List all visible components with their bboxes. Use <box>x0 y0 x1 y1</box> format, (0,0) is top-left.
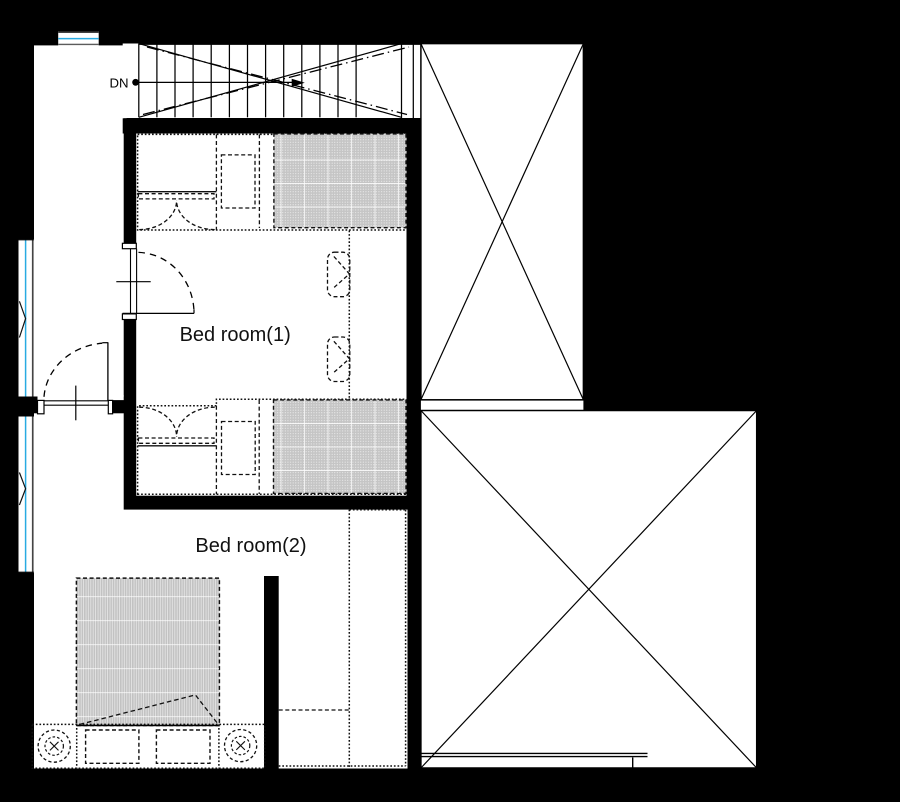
svg-text:Bed room(2): Bed room(2) <box>195 535 306 557</box>
svg-text:DN: DN <box>110 75 129 90</box>
svg-text:Bed room(1): Bed room(1) <box>180 324 291 346</box>
